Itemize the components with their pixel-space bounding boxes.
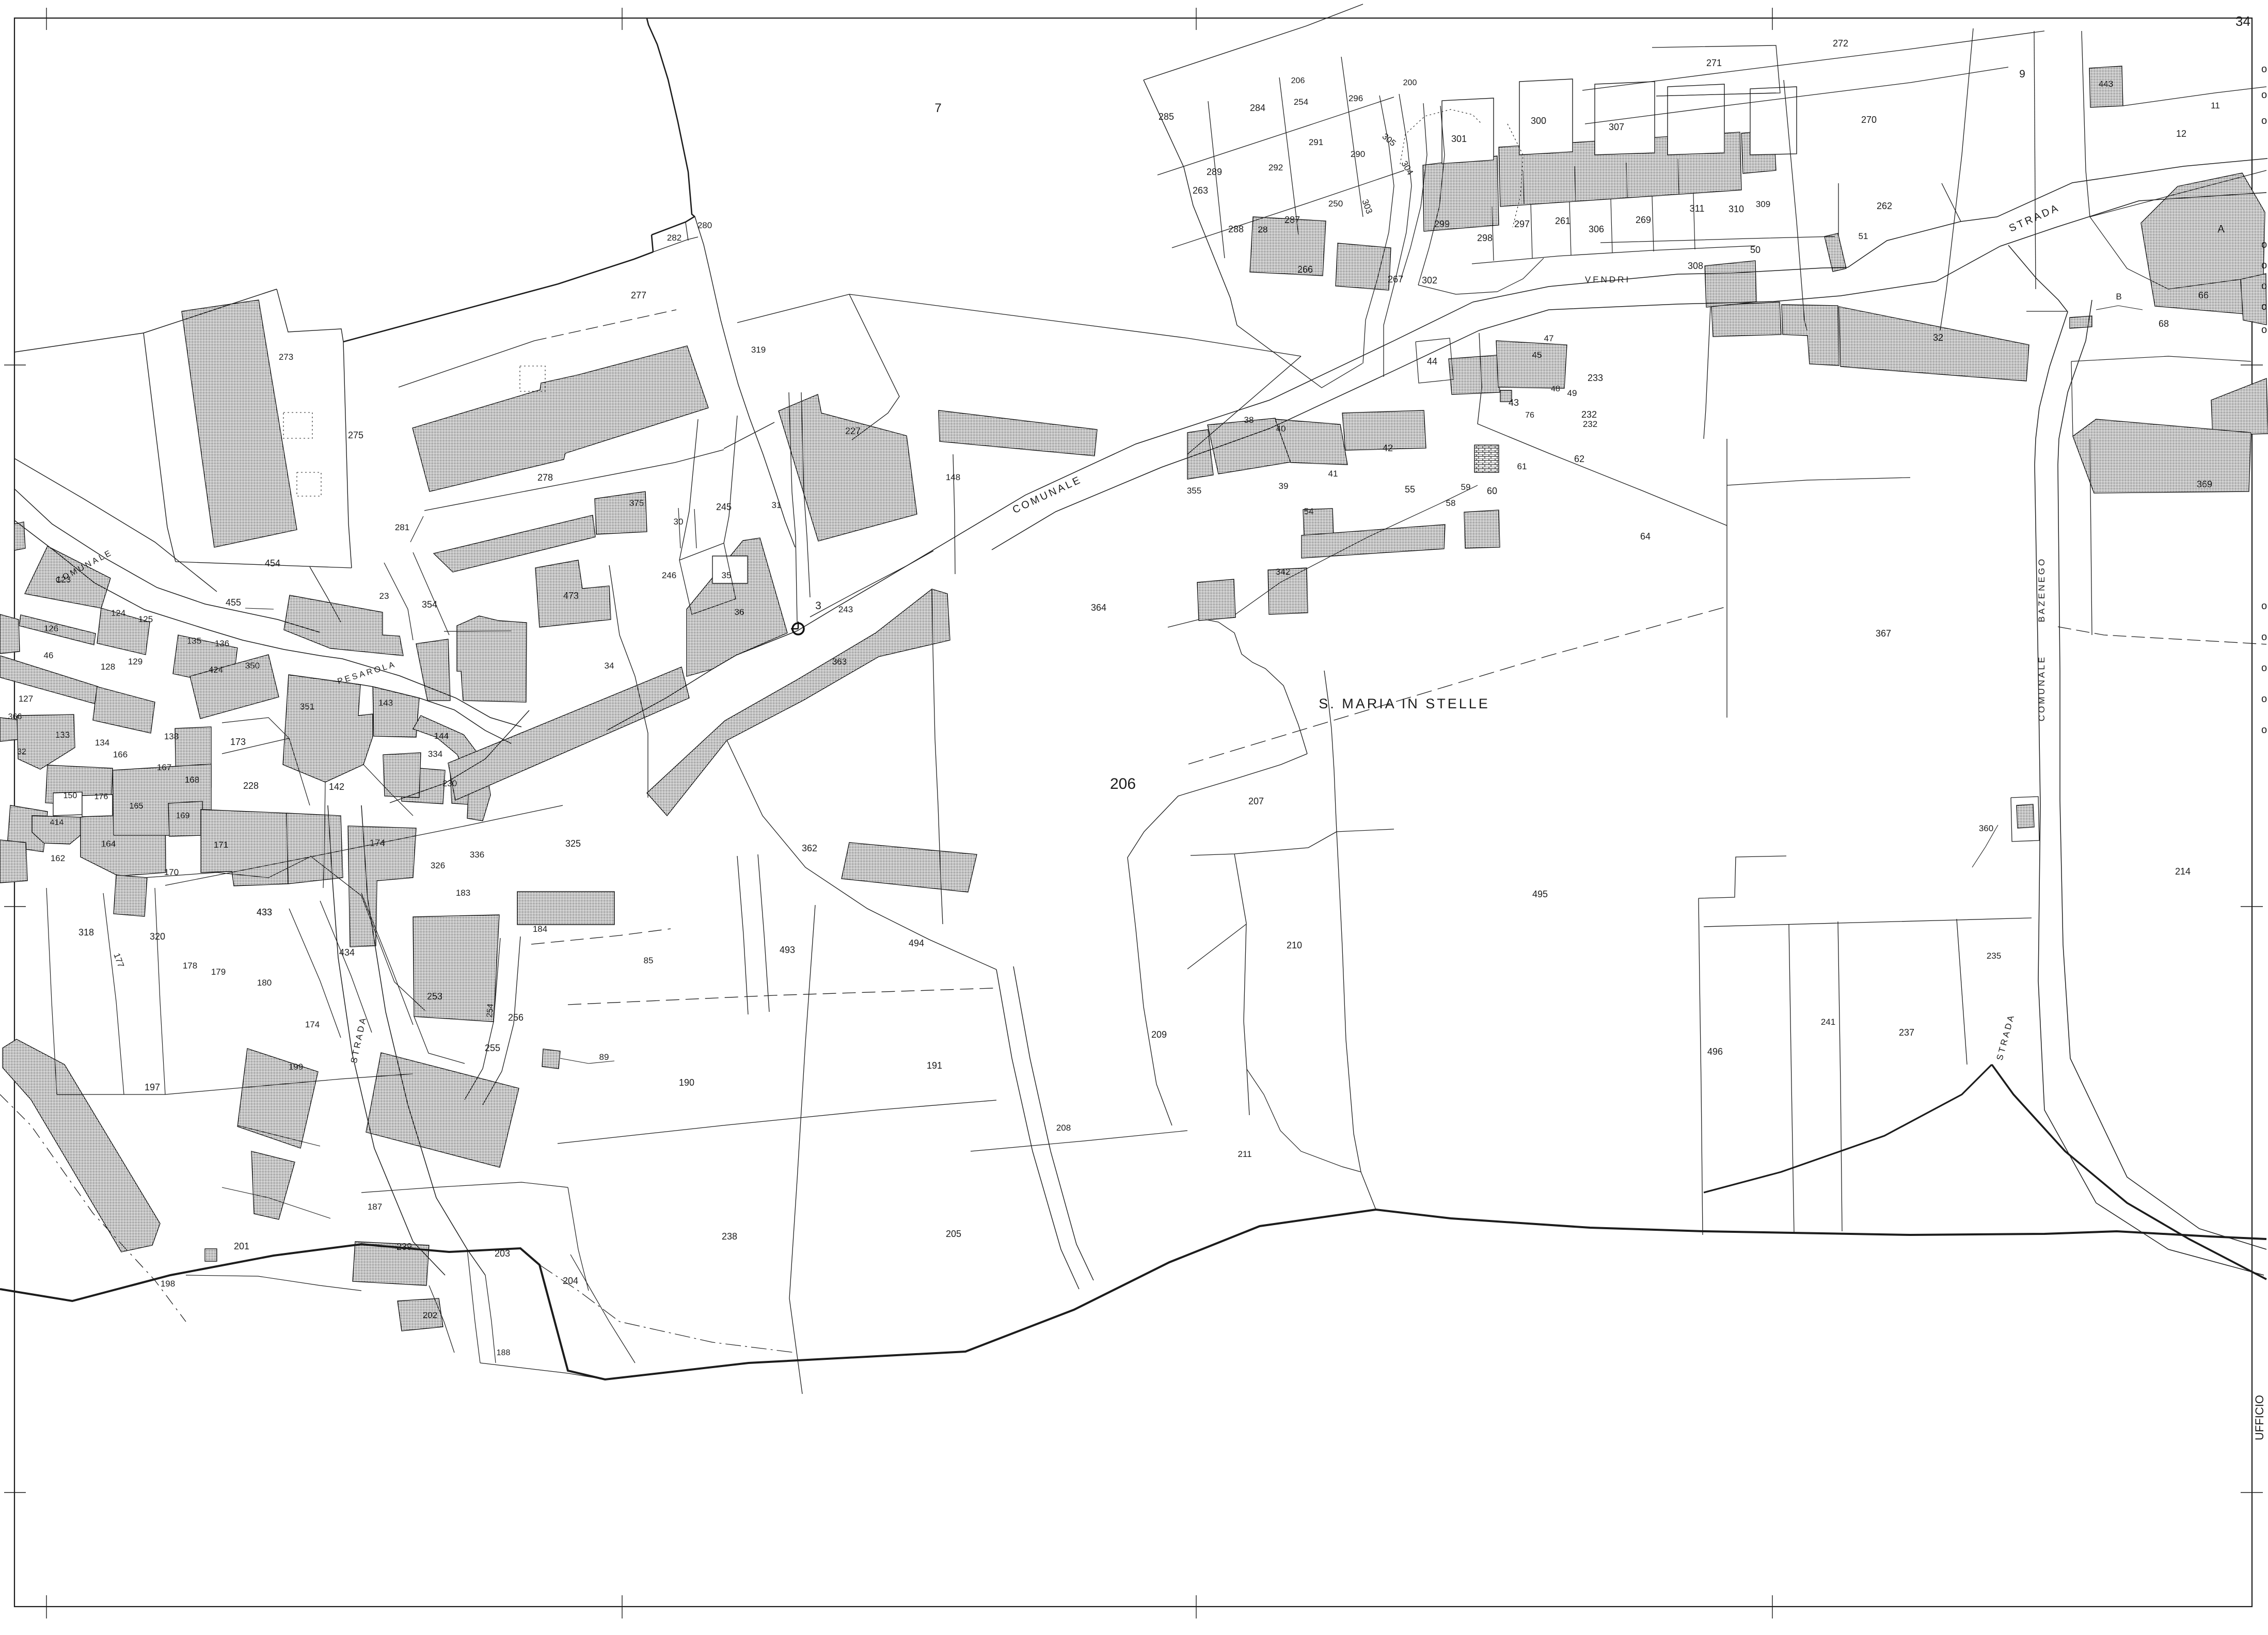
svg-text:255: 255	[485, 1043, 500, 1053]
svg-text:178: 178	[183, 961, 197, 971]
svg-text:134: 134	[95, 738, 109, 748]
svg-text:280: 280	[697, 220, 712, 230]
svg-text:285: 285	[1159, 112, 1174, 122]
svg-text:261: 261	[1555, 216, 1571, 226]
svg-text:129: 129	[128, 657, 142, 666]
svg-text:238: 238	[722, 1231, 737, 1242]
svg-text:362: 362	[802, 843, 817, 853]
svg-text:284: 284	[1250, 103, 1265, 113]
svg-text:40: 40	[1276, 424, 1286, 434]
svg-text:187: 187	[368, 1202, 382, 1212]
svg-text:o: o	[2261, 600, 2267, 612]
svg-text:292: 292	[1268, 163, 1283, 172]
svg-text:454: 454	[265, 558, 280, 568]
svg-text:233: 233	[1588, 373, 1603, 383]
svg-text:o: o	[2261, 239, 2267, 250]
svg-text:171: 171	[214, 840, 228, 850]
svg-text:30: 30	[674, 517, 684, 527]
svg-text:180: 180	[257, 978, 272, 988]
svg-text:126: 126	[44, 624, 58, 633]
svg-text:354: 354	[422, 599, 437, 610]
svg-text:351: 351	[300, 702, 314, 711]
svg-text:VENDRI: VENDRI	[1585, 275, 1630, 284]
svg-text:203: 203	[495, 1248, 510, 1259]
svg-text:UFFICIO: UFFICIO	[2253, 1395, 2266, 1440]
svg-text:355: 355	[1187, 486, 1201, 496]
svg-text:3: 3	[815, 600, 821, 612]
svg-text:59: 59	[1461, 482, 1471, 492]
svg-text:o: o	[2261, 724, 2267, 736]
svg-text:148: 148	[946, 472, 960, 482]
svg-text:434: 434	[339, 947, 355, 958]
svg-text:41: 41	[1328, 469, 1338, 479]
svg-text:o: o	[2261, 280, 2267, 292]
svg-text:o: o	[2261, 115, 2267, 126]
svg-text:170: 170	[164, 867, 179, 877]
svg-text:S. MARIA IN STELLE: S. MARIA IN STELLE	[1319, 696, 1490, 711]
svg-text:190: 190	[679, 1077, 694, 1088]
svg-text:204: 204	[563, 1276, 578, 1286]
svg-text:366: 366	[8, 712, 22, 721]
svg-text:167: 167	[157, 763, 171, 772]
svg-text:262: 262	[1877, 201, 1892, 211]
svg-text:48: 48	[1551, 385, 1560, 393]
svg-text:206: 206	[1110, 775, 1136, 792]
svg-text:124: 124	[111, 608, 125, 618]
svg-text:32: 32	[17, 748, 26, 756]
svg-text:201: 201	[234, 1241, 249, 1251]
svg-text:174: 174	[305, 1020, 320, 1029]
svg-text:35: 35	[722, 570, 732, 580]
svg-text:A: A	[2217, 224, 2225, 235]
svg-text:232: 232	[1581, 409, 1597, 420]
svg-text:51: 51	[1859, 231, 1868, 241]
svg-text:64: 64	[1640, 531, 1651, 542]
svg-text:245: 245	[716, 502, 732, 512]
svg-text:207: 207	[1248, 796, 1264, 806]
svg-text:278: 278	[537, 472, 553, 483]
svg-text:200: 200	[1403, 78, 1417, 87]
svg-text:287: 287	[1284, 215, 1300, 225]
svg-text:277: 277	[631, 290, 646, 300]
svg-text:58: 58	[1446, 498, 1456, 508]
svg-text:144: 144	[434, 731, 449, 741]
svg-text:254: 254	[1294, 97, 1308, 107]
svg-text:299: 299	[1434, 219, 1450, 229]
svg-text:135: 135	[187, 636, 201, 646]
svg-text:34: 34	[2235, 13, 2250, 29]
svg-text:375: 375	[629, 498, 644, 508]
svg-text:214: 214	[2175, 866, 2191, 877]
svg-text:206: 206	[1291, 76, 1305, 85]
svg-text:209: 209	[1151, 1029, 1167, 1040]
svg-text:306: 306	[1589, 224, 1604, 234]
svg-text:211: 211	[1238, 1149, 1251, 1159]
svg-text:38: 38	[1244, 415, 1254, 425]
svg-text:210: 210	[1287, 940, 1302, 950]
svg-text:301: 301	[1451, 134, 1467, 144]
svg-text:o: o	[2261, 631, 2267, 643]
svg-text:298: 298	[1477, 233, 1493, 243]
svg-text:125: 125	[138, 614, 153, 624]
svg-text:493: 493	[780, 945, 795, 955]
svg-text:342: 342	[1276, 567, 1290, 577]
svg-text:235: 235	[1987, 951, 2001, 961]
svg-text:494: 494	[909, 938, 924, 948]
svg-text:54: 54	[1304, 506, 1314, 516]
svg-text:o: o	[2261, 324, 2267, 336]
svg-text:291: 291	[1309, 137, 1323, 147]
svg-text:46: 46	[44, 650, 54, 660]
svg-text:228: 228	[243, 781, 259, 791]
svg-text:271: 271	[1706, 58, 1722, 68]
svg-text:28: 28	[1258, 225, 1268, 234]
svg-text:230: 230	[442, 779, 457, 788]
svg-text:334: 334	[428, 749, 442, 759]
svg-text:307: 307	[1609, 122, 1624, 132]
svg-text:168: 168	[185, 775, 199, 785]
svg-text:o: o	[2261, 89, 2267, 101]
svg-text:36: 36	[735, 607, 744, 617]
svg-text:310: 310	[1728, 204, 1744, 214]
svg-text:60: 60	[1487, 486, 1497, 496]
svg-text:191: 191	[927, 1060, 942, 1071]
svg-text:302: 302	[1422, 275, 1437, 285]
svg-text:150: 150	[64, 791, 77, 800]
svg-text:76: 76	[1525, 411, 1534, 420]
svg-text:142: 142	[329, 782, 344, 792]
svg-text:50: 50	[1750, 245, 1761, 255]
svg-text:266: 266	[1297, 264, 1313, 275]
svg-text:49: 49	[1567, 388, 1577, 398]
svg-text:414: 414	[50, 818, 64, 827]
svg-text:31: 31	[772, 500, 782, 510]
svg-text:433: 433	[257, 907, 272, 917]
svg-text:290: 290	[1351, 149, 1365, 159]
svg-text:34: 34	[605, 661, 614, 671]
svg-text:250: 250	[1328, 199, 1343, 209]
svg-text:o: o	[2261, 301, 2267, 312]
svg-text:183: 183	[456, 888, 470, 898]
svg-text:297: 297	[1514, 219, 1530, 229]
svg-text:188: 188	[497, 1348, 511, 1357]
svg-text:424: 424	[209, 665, 223, 675]
svg-text:263: 263	[1193, 185, 1208, 196]
svg-text:61: 61	[1517, 462, 1527, 471]
svg-text:350: 350	[245, 661, 260, 671]
svg-text:300: 300	[1531, 116, 1546, 126]
svg-text:11: 11	[2211, 101, 2220, 110]
svg-text:237: 237	[1899, 1027, 1914, 1038]
svg-text:239: 239	[396, 1242, 412, 1252]
svg-text:o: o	[2261, 260, 2267, 271]
svg-text:272: 272	[1833, 38, 1848, 49]
svg-text:288: 288	[1228, 224, 1244, 234]
svg-text:199: 199	[289, 1062, 303, 1072]
svg-text:308: 308	[1688, 261, 1703, 271]
svg-text:198: 198	[161, 1279, 175, 1289]
svg-text:273: 273	[279, 352, 293, 362]
svg-text:143: 143	[378, 698, 393, 708]
svg-text:336: 336	[470, 850, 484, 860]
svg-text:9: 9	[2019, 68, 2025, 80]
svg-text:369: 369	[2197, 479, 2212, 489]
svg-text:43: 43	[1509, 398, 1519, 408]
svg-text:39: 39	[1279, 481, 1289, 491]
svg-text:318: 318	[78, 927, 94, 938]
svg-text:326: 326	[431, 861, 445, 870]
svg-text:319: 319	[751, 345, 766, 355]
svg-text:89: 89	[599, 1052, 609, 1062]
svg-text:289: 289	[1207, 167, 1222, 177]
svg-text:241: 241	[1821, 1017, 1835, 1027]
svg-text:232: 232	[1583, 419, 1597, 429]
svg-text:364: 364	[1091, 602, 1106, 613]
svg-text:55: 55	[1405, 484, 1415, 495]
svg-text:o: o	[2261, 693, 2267, 705]
svg-text:136: 136	[215, 639, 229, 648]
svg-text:162: 162	[51, 853, 65, 863]
svg-text:360: 360	[1979, 823, 1993, 833]
svg-text:42: 42	[1383, 443, 1393, 453]
svg-text:45: 45	[1532, 350, 1542, 360]
svg-text:246: 246	[662, 570, 676, 580]
svg-text:243: 243	[838, 605, 853, 614]
svg-text:164: 164	[101, 839, 116, 849]
svg-text:165: 165	[130, 802, 144, 811]
svg-text:496: 496	[1707, 1046, 1723, 1057]
svg-text:127: 127	[19, 694, 33, 704]
svg-text:256: 256	[508, 1012, 524, 1023]
svg-text:309: 309	[1756, 199, 1770, 209]
svg-text:7: 7	[934, 101, 941, 115]
svg-text:282: 282	[667, 233, 681, 243]
svg-text:23: 23	[379, 591, 389, 601]
svg-text:495: 495	[1532, 889, 1548, 899]
svg-text:138: 138	[164, 732, 179, 741]
svg-text:B: B	[2116, 292, 2121, 301]
svg-text:o: o	[2261, 64, 2267, 75]
svg-text:o: o	[2261, 662, 2267, 674]
svg-text:367: 367	[1876, 628, 1891, 639]
svg-text:174: 174	[370, 838, 385, 848]
svg-text:176: 176	[94, 792, 108, 801]
svg-text:270: 270	[1861, 115, 1877, 125]
svg-text:202: 202	[423, 1310, 437, 1320]
svg-text:68: 68	[2159, 319, 2169, 329]
svg-text:275: 275	[348, 430, 363, 440]
svg-text:179: 179	[211, 967, 226, 977]
svg-text:443: 443	[2099, 79, 2113, 89]
svg-text:BAZENEGO: BAZENEGO	[2037, 557, 2047, 622]
svg-text:166: 166	[113, 750, 128, 759]
svg-text:473: 473	[563, 591, 579, 601]
svg-text:281: 281	[395, 522, 409, 532]
svg-text:62: 62	[1574, 454, 1584, 464]
svg-text:66: 66	[2198, 290, 2209, 300]
svg-text:311: 311	[1690, 203, 1705, 214]
svg-text:253: 253	[427, 991, 442, 1002]
svg-text:12: 12	[2176, 129, 2186, 139]
svg-text:184: 184	[533, 924, 547, 934]
svg-text:47: 47	[1544, 334, 1554, 343]
svg-text:363: 363	[832, 657, 847, 666]
svg-text:44: 44	[1427, 356, 1437, 367]
svg-text:173: 173	[230, 737, 246, 747]
svg-text:85: 85	[644, 956, 654, 965]
svg-text:197: 197	[145, 1082, 160, 1092]
svg-text:169: 169	[176, 812, 190, 820]
svg-text:254: 254	[485, 1003, 495, 1018]
svg-text:320: 320	[150, 931, 165, 942]
svg-text:455: 455	[226, 597, 241, 608]
svg-text:COMUNALE: COMUNALE	[2037, 655, 2047, 721]
svg-text:325: 325	[565, 838, 581, 849]
svg-text:296: 296	[1349, 93, 1363, 103]
svg-text:267: 267	[1388, 274, 1403, 284]
svg-text:133: 133	[55, 730, 70, 740]
svg-text:208: 208	[1056, 1123, 1071, 1133]
svg-text:227: 227	[845, 426, 861, 436]
svg-text:128: 128	[101, 662, 115, 672]
svg-text:32: 32	[1933, 332, 1943, 343]
svg-text:205: 205	[946, 1229, 961, 1239]
svg-text:269: 269	[1636, 215, 1651, 225]
